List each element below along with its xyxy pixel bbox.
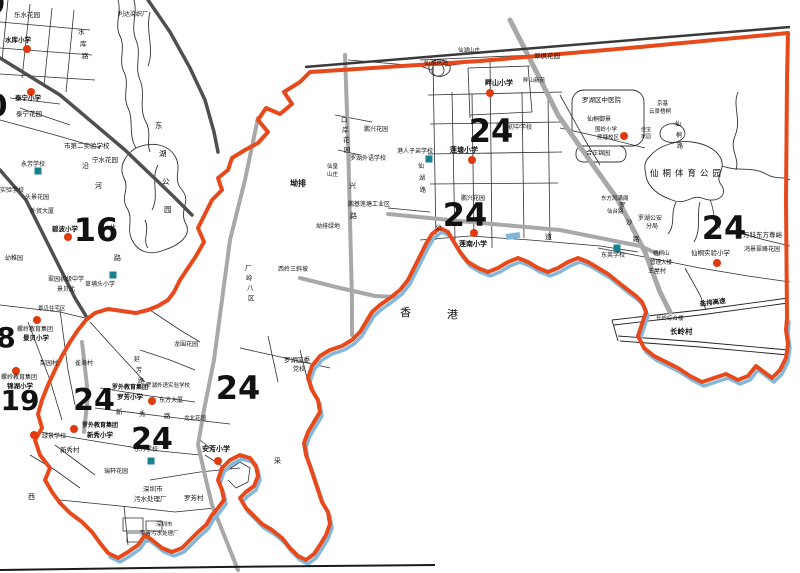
map-label: 园 <box>164 205 172 214</box>
district-number: 0 <box>0 89 7 124</box>
map-label: 公 <box>435 224 442 232</box>
map-label: 西 <box>28 493 35 501</box>
map-label: 湖 <box>419 174 425 182</box>
map-label: 花 <box>343 135 350 144</box>
district-number: 16 <box>74 211 119 249</box>
map-label: 罗 <box>619 201 626 209</box>
map-label: 仙 <box>418 162 424 170</box>
map-label: 罗湖公安 <box>638 214 662 222</box>
map-label: 鸿景翠峰花园 <box>744 245 780 253</box>
school-marker-square <box>426 156 433 163</box>
map-label: 罗芳村 <box>184 493 204 502</box>
school-label: 莲塘校区 <box>597 133 620 141</box>
school-marker-dot <box>64 233 72 241</box>
school-marker-dot <box>33 316 41 324</box>
map-label: 乐水花园 <box>14 10 40 19</box>
map-label: 罗湖外语学校 <box>350 154 386 162</box>
map-label: 沙 <box>626 218 633 226</box>
map-label: 幼稚园 <box>5 254 23 262</box>
map-label: 深圳市 <box>156 520 173 528</box>
map-label: 长岭综合楼 <box>656 314 684 322</box>
map-label: 坳排 <box>290 178 306 188</box>
gray-road <box>198 118 258 570</box>
map-label: 区 <box>248 294 255 302</box>
map-label: 京基 <box>657 99 669 107</box>
map-label: 罗芳污水处理厂 <box>140 529 179 537</box>
school-label: 新秀小学 <box>87 430 114 439</box>
district-number: 24 <box>73 383 115 418</box>
map-label: 兴 <box>349 181 356 190</box>
park-detail <box>145 12 158 248</box>
map-label: 湖 <box>159 149 167 158</box>
school-marker-dot <box>486 89 494 97</box>
school-marker-dot <box>620 132 628 140</box>
school-label: 围岭小学 <box>595 125 618 133</box>
map-label: 盐排高速 <box>699 296 726 308</box>
map-label: 路 <box>633 234 640 243</box>
district-number: 24 <box>469 112 514 150</box>
map-label: 新秀村 <box>60 445 80 454</box>
school-label: 罗外教育集团 <box>112 383 148 391</box>
map-label: 深圳市 <box>143 484 163 493</box>
map-label: 芳 <box>136 366 142 374</box>
school-label: 螺岭教育集团 <box>17 325 53 333</box>
map-label: 利达染织厂 <box>118 10 148 18</box>
map-label: 路 <box>350 211 357 220</box>
map-label: 佳宝 <box>641 126 651 133</box>
map-label: 龙围花园 <box>174 340 198 348</box>
district-boundary-line <box>35 33 788 560</box>
map-label: 翠园初级中学 <box>48 275 84 283</box>
dark-road <box>0 58 192 215</box>
district-number: 24 <box>702 209 747 247</box>
map-label: 市第二实验学校 <box>64 141 110 150</box>
street-line <box>0 0 100 148</box>
map-label: 合正锦园 <box>586 149 610 157</box>
map-label: 瑞轩花园 <box>104 467 128 475</box>
map-label: 采 <box>274 456 281 465</box>
map-frame-line <box>0 565 435 570</box>
district-number: 24 <box>131 422 173 457</box>
map-label: 泰宁花园 <box>16 109 42 118</box>
map-label: 云景梧桐 <box>649 107 672 115</box>
map-label: 坳排绿地 <box>316 222 340 230</box>
school-label: 草埔头小学 <box>85 280 115 288</box>
map-label: 鹏兴花园 <box>364 125 388 133</box>
school-marker-dot <box>148 397 156 405</box>
map-label: 污水处理厂 <box>134 494 167 503</box>
map-label: 实验学校 <box>0 186 24 194</box>
map-label: 景贝北 <box>57 285 75 293</box>
map-label: 道 <box>545 232 552 241</box>
map-label: 仙 <box>675 120 681 128</box>
map-label: 龙北花园 <box>184 414 207 422</box>
school-label: 罗芳小学 <box>117 392 144 401</box>
map-label: 王屋村 <box>648 267 666 275</box>
map-label: 岭 <box>246 273 253 282</box>
school-label: 畔山小学 <box>485 78 513 87</box>
map-label: 路 <box>164 411 171 420</box>
map-label: 雀海村 <box>75 359 93 367</box>
map-label: 秀 <box>139 409 146 418</box>
map-label: 仙桐体育公园 <box>650 168 725 179</box>
map-label: 河 <box>95 182 102 190</box>
map-label: 延 <box>134 355 140 363</box>
district-number: 8 <box>0 321 16 354</box>
district-number: 24 <box>443 196 488 234</box>
district-number: 19 <box>1 384 40 417</box>
map-label: 路 <box>82 51 89 60</box>
map-label: 东 <box>155 120 163 130</box>
map-label: 路 <box>420 186 426 194</box>
map-label: 外贸大厦 <box>30 207 54 215</box>
map-label: 仙皇 <box>327 162 339 170</box>
school-label: 罗外教育集团 <box>82 421 118 429</box>
map-label: 梧桐山 <box>653 249 670 257</box>
reservoir-outline <box>118 0 136 148</box>
map-label: 管理大楼 <box>650 258 673 266</box>
map-label: 罗湖区中医院 <box>582 95 622 104</box>
map-label: 东方大厦 <box>159 396 183 404</box>
map-label: 宁水花园 <box>92 155 118 164</box>
river-patch <box>506 232 521 240</box>
school-label: 泰宁小学 <box>14 93 42 102</box>
school-label: 螺岭教育集团 <box>1 373 37 381</box>
map-label: 园 <box>344 146 351 154</box>
map-label: 港 <box>447 308 458 321</box>
school-marker-square <box>110 272 117 279</box>
map-label: 长岭村 <box>670 326 693 336</box>
map-label: 家园 <box>641 133 651 140</box>
school-label: 景贝小学 <box>23 333 50 342</box>
map-label: 库 <box>80 39 87 48</box>
school-marker-dot <box>23 45 31 53</box>
map-label: 梨园村 <box>40 359 58 367</box>
school-label: 港人子弟学校 <box>397 147 433 155</box>
map-label: 仙湖山庄 <box>458 46 481 54</box>
railway-top-line <box>305 27 790 67</box>
map-label: 公 <box>162 177 170 186</box>
map-label: 景贝住宅区 <box>38 304 66 312</box>
map-label: 仙桐御景 <box>587 115 611 123</box>
map-label: 罗湖区委 <box>284 355 311 364</box>
map-label: 仙湖总站 <box>424 59 448 67</box>
school-label: 绿景学校 <box>42 432 66 440</box>
school-label: 安芳小学 <box>202 444 230 453</box>
map-label: 山庄 <box>327 170 339 178</box>
district-number: 24 <box>216 369 261 407</box>
reservoir-outline <box>134 0 150 152</box>
map-label: 万科东方尊峪 <box>743 230 783 239</box>
school-label: 永芳学校 <box>21 160 45 168</box>
map-label: 沿 <box>82 161 89 170</box>
map-label: 畔山新苑 <box>523 76 546 84</box>
map-label: 桐 <box>676 131 682 139</box>
gray-road <box>345 55 352 335</box>
district-number: 9 <box>0 0 5 22</box>
map-label: 罗湖外语实验学校 <box>146 381 191 389</box>
map-label: 党校 <box>293 365 305 373</box>
map-label: 八 <box>247 284 254 292</box>
school-marker-square <box>614 245 621 252</box>
school-label: 东英学校 <box>601 251 625 259</box>
map-label: 口 <box>341 116 348 124</box>
school-label: 莲南小学 <box>459 239 487 248</box>
map-label: 水 <box>78 27 85 36</box>
map-label: 路 <box>677 142 683 150</box>
school-marker-dot <box>713 259 721 267</box>
map-label: 厂 <box>245 264 252 272</box>
map-label: 香 <box>400 306 411 319</box>
map-label: 翠枫花园 <box>534 51 560 60</box>
school-marker-square <box>35 168 42 175</box>
school-marker-dot <box>30 431 38 439</box>
school-label: 仙桐实验小学 <box>691 248 731 257</box>
gray-road <box>300 278 396 297</box>
map-label: 新 <box>116 407 123 416</box>
map-label: 头景花园 <box>25 193 49 201</box>
school-marker-dot <box>70 425 78 433</box>
map-label: 西岭三斜坡 <box>278 265 308 273</box>
school-label: 水库小学 <box>5 35 32 44</box>
map-label: 鹏基莲塘工业区 <box>348 200 390 208</box>
district-map: 乐水花园利达染织厂水库路泰宁花园市第二实验学校东湖公园宁水花园沿河北路头景花园外… <box>0 0 800 573</box>
map-label: 分局 <box>646 222 658 230</box>
school-marker-dot <box>468 156 476 164</box>
school-marker-square <box>148 458 155 465</box>
map-label: 岸 <box>342 126 349 134</box>
school-marker-dot <box>214 457 222 465</box>
map-label: 路 <box>114 253 121 262</box>
